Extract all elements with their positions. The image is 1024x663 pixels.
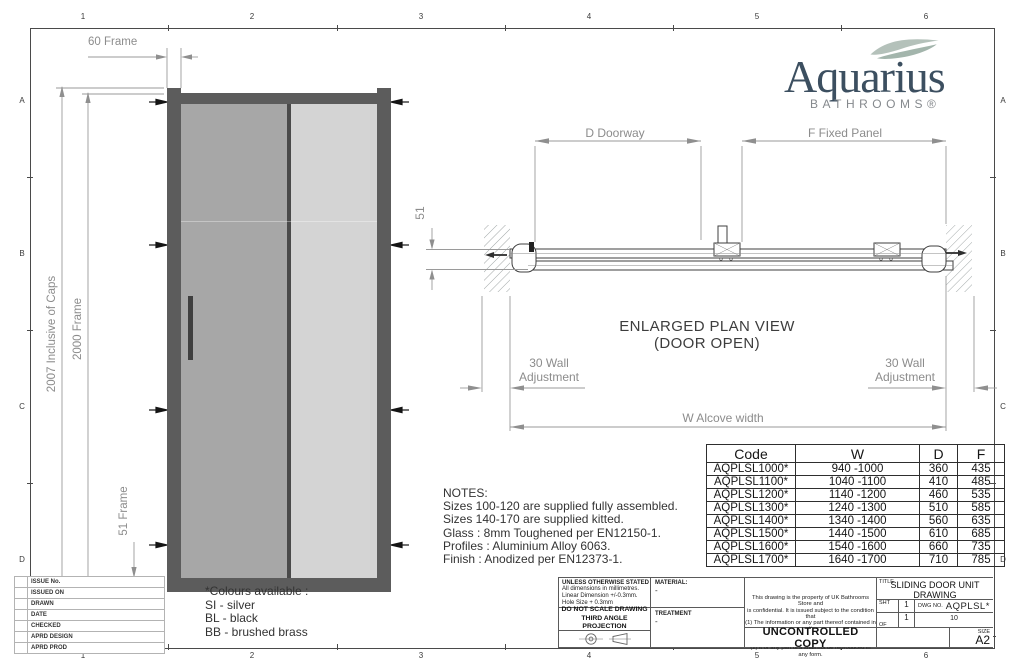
drawing-sheet: 1 2 3 4 5 6 1 2 3 4 5 6 A B C D A B C D: [0, 0, 1024, 663]
revision-label: ISSUED ON: [28, 588, 64, 598]
zone-col-label: 4: [581, 651, 597, 660]
dim-bottom-frame: 51 Frame: [118, 461, 130, 561]
revision-row: CHECKED: [15, 621, 165, 632]
plan-view-subtitle: (DOOR OPEN): [607, 335, 807, 352]
cell-f: 485: [958, 476, 1005, 489]
table-row: AQPLSL1300*1240 -1300510585: [707, 502, 1005, 515]
col-header-d: D: [920, 445, 958, 463]
cell-f: 535: [958, 489, 1005, 502]
revision-value-cell: [15, 643, 28, 653]
do-not-scale-text: DO NOT SCALE DRAWING: [559, 606, 650, 615]
colour-option: BL - black: [205, 612, 308, 626]
cell-w: 1140 -1200: [796, 489, 920, 502]
cell-d: 560: [920, 515, 958, 528]
size-table: Code W D F AQPLSL1000*940 -1000360435 AQ…: [706, 444, 1005, 567]
border-tick: [168, 644, 169, 650]
size-table-header-row: Code W D F: [707, 445, 1005, 463]
revision-label: APRD PROD: [28, 643, 67, 653]
zone-col-label: 6: [918, 651, 934, 660]
col-header-w: W: [796, 445, 920, 463]
border-tick: [673, 25, 674, 31]
third-angle-projection-icon: [575, 632, 635, 646]
border-tick: [505, 644, 506, 650]
cell-w: 1340 -1400: [796, 515, 920, 528]
legal-line: is confidential. It is issued subject to…: [745, 608, 876, 621]
revision-label: DRAWN: [28, 599, 54, 609]
cell-d: 610: [920, 528, 958, 541]
cell-w: 1440 -1500: [796, 528, 920, 541]
table-row: AQPLSL1700*1640 -1700710785: [707, 554, 1005, 567]
revision-label: CHECKED: [28, 621, 61, 631]
elevation-dimension-lines: [40, 30, 420, 630]
of-label: OF: [877, 613, 899, 627]
zone-col-label: 2: [244, 12, 260, 21]
sht-value: 1: [899, 600, 915, 612]
cell-d: 660: [920, 541, 958, 554]
sheet-of-row: OF 1 10: [877, 613, 993, 628]
zone-col-label: 3: [413, 651, 429, 660]
dwg-cell: DWG NO. AQPLSL*: [915, 600, 993, 612]
wall-adjustment-line1: 30 Wall: [855, 356, 955, 370]
zone-row-label: A: [16, 96, 28, 105]
dim-wall-adjustment-left: 30 Wall Adjustment: [499, 356, 599, 384]
revision-value-cell: [15, 599, 28, 609]
revision-table: ISSUE No. ISSUED ON DRAWN DATE CHECKED A…: [14, 576, 165, 654]
sheet-number-row: SHT 1 DWG NO. AQPLSL*: [877, 600, 993, 613]
wall-adjustment-line1: 30 Wall: [499, 356, 599, 370]
projection-symbol-cell: [559, 631, 651, 647]
material-value: -: [655, 586, 744, 595]
table-row: AQPLSL1600*1540 -1600660735: [707, 541, 1005, 554]
drawing-title-cell: TITLE SLIDING DOOR UNIT DRAWING: [877, 578, 993, 600]
material-cell: MATERIAL: -: [651, 578, 745, 608]
dim-overall-height: 2007 Inclusive of Caps: [46, 234, 58, 434]
tolerance-cell: UNLESS OTHERWISE STATED All dimensions i…: [559, 578, 651, 608]
revision-label: DATE: [28, 610, 47, 620]
scale-cell: DO NOT SCALE DRAWING THIRD ANGLE PROJECT…: [559, 608, 651, 631]
revision-value-cell: [15, 577, 28, 587]
dwg-value: AQPLSL*: [946, 601, 990, 612]
dim-frame-width: 60 Frame: [88, 36, 137, 48]
revision-label: APRD DESIGN: [28, 632, 73, 642]
border-tick: [27, 483, 33, 484]
cell-f: 785: [958, 554, 1005, 567]
treatment-value: -: [655, 617, 744, 626]
tolerance-line: All dimensions in millimetres.: [562, 586, 650, 593]
table-row: AQPLSL1100*1040 -1100410485: [707, 476, 1005, 489]
cell-code: AQPLSL1000*: [707, 463, 796, 476]
cell-w: 940 -1000: [796, 463, 920, 476]
notes-line: Finish : Anodized per EN12373-1.: [443, 553, 678, 566]
table-row: AQPLSL1500*1440 -1500610685: [707, 528, 1005, 541]
revision-label: ISSUE No.: [28, 577, 60, 587]
table-row: AQPLSL1000*940 -1000360435: [707, 463, 1005, 476]
col-header-code: Code: [707, 445, 796, 463]
zone-col-label: 4: [581, 12, 597, 21]
revision-row: DATE: [15, 610, 165, 621]
drawing-title-line2: DRAWING: [877, 591, 993, 601]
cell-w: 1240 -1300: [796, 502, 920, 515]
border-tick: [27, 177, 33, 178]
border-tick: [27, 330, 33, 331]
cell-f: 435: [958, 463, 1005, 476]
dwg-sub-value: 10: [915, 613, 993, 627]
zone-row-label: D: [16, 555, 28, 564]
legal-cell: This drawing is the property of UK Bathr…: [745, 578, 877, 628]
size-cell: SIZE A2: [949, 628, 993, 647]
uncontrolled-copy-text: UNCONTROLLED COPY: [745, 626, 876, 650]
legal-line: This drawing is the property of UK Bathr…: [745, 595, 876, 608]
colour-option: BB - brushed brass: [205, 626, 308, 640]
cell-d: 510: [920, 502, 958, 515]
revision-row: DRAWN: [15, 599, 165, 610]
cell-f: 585: [958, 502, 1005, 515]
border-tick: [505, 25, 506, 31]
cell-code: AQPLSL1500*: [707, 528, 796, 541]
cell-code: AQPLSL1200*: [707, 489, 796, 502]
cell-w: 1040 -1100: [796, 476, 920, 489]
uncontrolled-copy-cell: UNCONTROLLED COPY: [745, 628, 877, 647]
border-tick: [337, 644, 338, 650]
cell-code: AQPLSL1100*: [707, 476, 796, 489]
dwg-label: DWG NO.: [915, 603, 946, 609]
tolerance-line: Linear Dimension +/-0.3mm.: [562, 593, 650, 600]
revision-row: APRD DESIGN: [15, 632, 165, 643]
revision-value-cell: [15, 621, 28, 631]
dim-doorway: D Doorway: [560, 126, 670, 140]
zone-col-label: 1: [75, 12, 91, 21]
notes-line: Sizes 140-170 are supplied kitted.: [443, 513, 678, 526]
dim-alcove-width: W Alcove width: [623, 411, 823, 425]
notes-line: Glass : 8mm Toughened per EN12150-1.: [443, 527, 678, 540]
zone-col-label: 2: [244, 651, 260, 660]
notes-block: NOTES: Sizes 100-120 are supplied fully …: [443, 487, 678, 566]
sht-label: SHT: [877, 600, 899, 612]
cell-w: 1640 -1700: [796, 554, 920, 567]
logo-subtitle-text: BATHROOMS®: [810, 97, 940, 111]
title-label: TITLE: [879, 579, 894, 585]
revision-value-cell: [15, 588, 28, 598]
size-value: A2: [950, 635, 990, 646]
cell-f: 635: [958, 515, 1005, 528]
zone-row-label: B: [16, 249, 28, 258]
zone-col-label: 5: [749, 12, 765, 21]
of-value: 1: [899, 613, 915, 627]
wall-adjustment-line2: Adjustment: [855, 370, 955, 384]
cell-d: 360: [920, 463, 958, 476]
dim-frame-height: 2000 Frame: [72, 229, 84, 429]
cell-d: 410: [920, 476, 958, 489]
zone-col-label: 3: [413, 12, 429, 21]
treatment-cell: TREATMENT -: [651, 608, 745, 647]
dim-depth-51: 51: [413, 163, 427, 263]
cell-code: AQPLSL1700*: [707, 554, 796, 567]
border-tick: [841, 25, 842, 31]
table-row: AQPLSL1200*1140 -1200460535: [707, 489, 1005, 502]
cell-f: 685: [958, 528, 1005, 541]
dim-fixed-panel: F Fixed Panel: [785, 126, 905, 140]
cell-w: 1540 -1600: [796, 541, 920, 554]
colours-title: *Colours available :: [205, 585, 308, 599]
plan-view-linework: [415, 120, 1000, 440]
logo-brand-text: Aquarius: [784, 50, 945, 103]
plan-view-title: ENLARGED PLAN VIEW: [607, 318, 807, 335]
colour-option: SI - silver: [205, 599, 308, 613]
zone-row-label: A: [997, 96, 1009, 105]
col-header-f: F: [958, 445, 1005, 463]
third-angle-text: THIRD ANGLE PROJECTION: [559, 615, 650, 632]
zone-col-label: 6: [918, 12, 934, 21]
cell-code: AQPLSL1400*: [707, 515, 796, 528]
table-row: AQPLSL1400*1340 -1400560635: [707, 515, 1005, 528]
zone-row-label: C: [16, 402, 28, 411]
dim-wall-adjustment-right: 30 Wall Adjustment: [855, 356, 955, 384]
revision-value-cell: [15, 632, 28, 642]
cell-code: AQPLSL1300*: [707, 502, 796, 515]
revision-row: ISSUED ON: [15, 588, 165, 599]
cell-d: 460: [920, 489, 958, 502]
revision-row: ISSUE No.: [15, 577, 165, 588]
colours-block: *Colours available : SI - silver BL - bl…: [205, 585, 308, 639]
cell-f: 735: [958, 541, 1005, 554]
cell-code: AQPLSL1600*: [707, 541, 796, 554]
wall-adjustment-line2: Adjustment: [499, 370, 599, 384]
revision-row: APRD PROD: [15, 643, 165, 654]
revision-value-cell: [15, 610, 28, 620]
cell-d: 710: [920, 554, 958, 567]
